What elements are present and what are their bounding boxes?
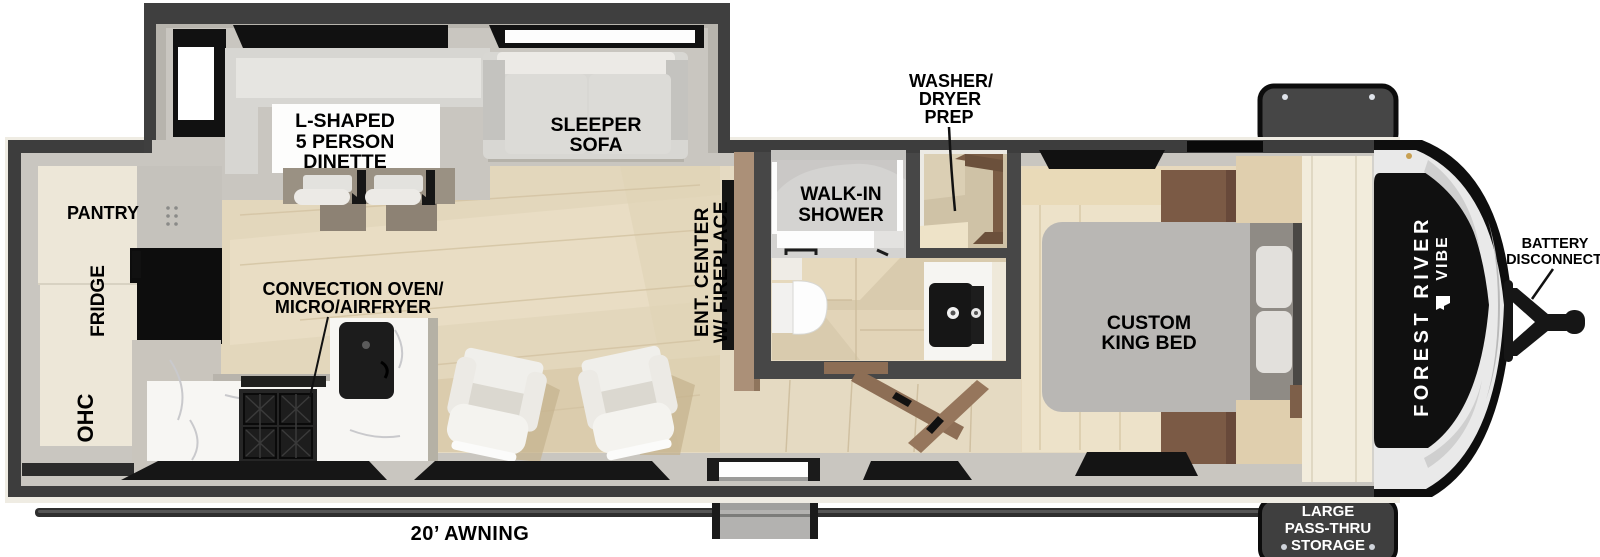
svg-text:MICRO/AIRFRYER: MICRO/AIRFRYER bbox=[275, 297, 431, 317]
svg-text:PREP: PREP bbox=[924, 107, 973, 127]
svg-text:W/ FIREPLACE: W/ FIREPLACE bbox=[711, 201, 732, 343]
svg-text:20’ AWNING: 20’ AWNING bbox=[411, 523, 530, 545]
svg-text:PANTRY: PANTRY bbox=[67, 203, 139, 223]
svg-text:BATTERY: BATTERY bbox=[1522, 236, 1589, 252]
svg-text:SOFA: SOFA bbox=[569, 134, 622, 156]
svg-text:LARGE: LARGE bbox=[1302, 503, 1355, 520]
svg-text:WASHER/: WASHER/ bbox=[909, 71, 993, 91]
svg-text:VIBE: VIBE bbox=[1434, 235, 1451, 280]
svg-text:L-SHAPED: L-SHAPED bbox=[295, 110, 395, 132]
svg-text:5 PERSON: 5 PERSON bbox=[296, 131, 395, 153]
svg-text:OHC: OHC bbox=[73, 393, 98, 442]
svg-text:DISCONNECT: DISCONNECT bbox=[1506, 252, 1600, 268]
svg-text:WALK-IN: WALK-IN bbox=[800, 184, 881, 205]
svg-text:STORAGE: STORAGE bbox=[1291, 537, 1365, 554]
svg-text:SLEEPER: SLEEPER bbox=[550, 114, 641, 136]
svg-text:KING BED: KING BED bbox=[1101, 332, 1196, 354]
svg-text:CONVECTION OVEN/: CONVECTION OVEN/ bbox=[262, 279, 443, 299]
svg-text:FOREST RIVER: FOREST RIVER bbox=[1411, 215, 1433, 417]
svg-text:CUSTOM: CUSTOM bbox=[1107, 312, 1191, 334]
svg-text:FRIDGE: FRIDGE bbox=[88, 265, 109, 337]
svg-text:PASS-THRU: PASS-THRU bbox=[1285, 520, 1371, 537]
svg-text:ENT. CENTER: ENT. CENTER bbox=[692, 207, 713, 337]
svg-text:SHOWER: SHOWER bbox=[798, 205, 884, 226]
svg-text:DINETTE: DINETTE bbox=[303, 151, 386, 173]
svg-text:DRYER: DRYER bbox=[919, 89, 981, 109]
